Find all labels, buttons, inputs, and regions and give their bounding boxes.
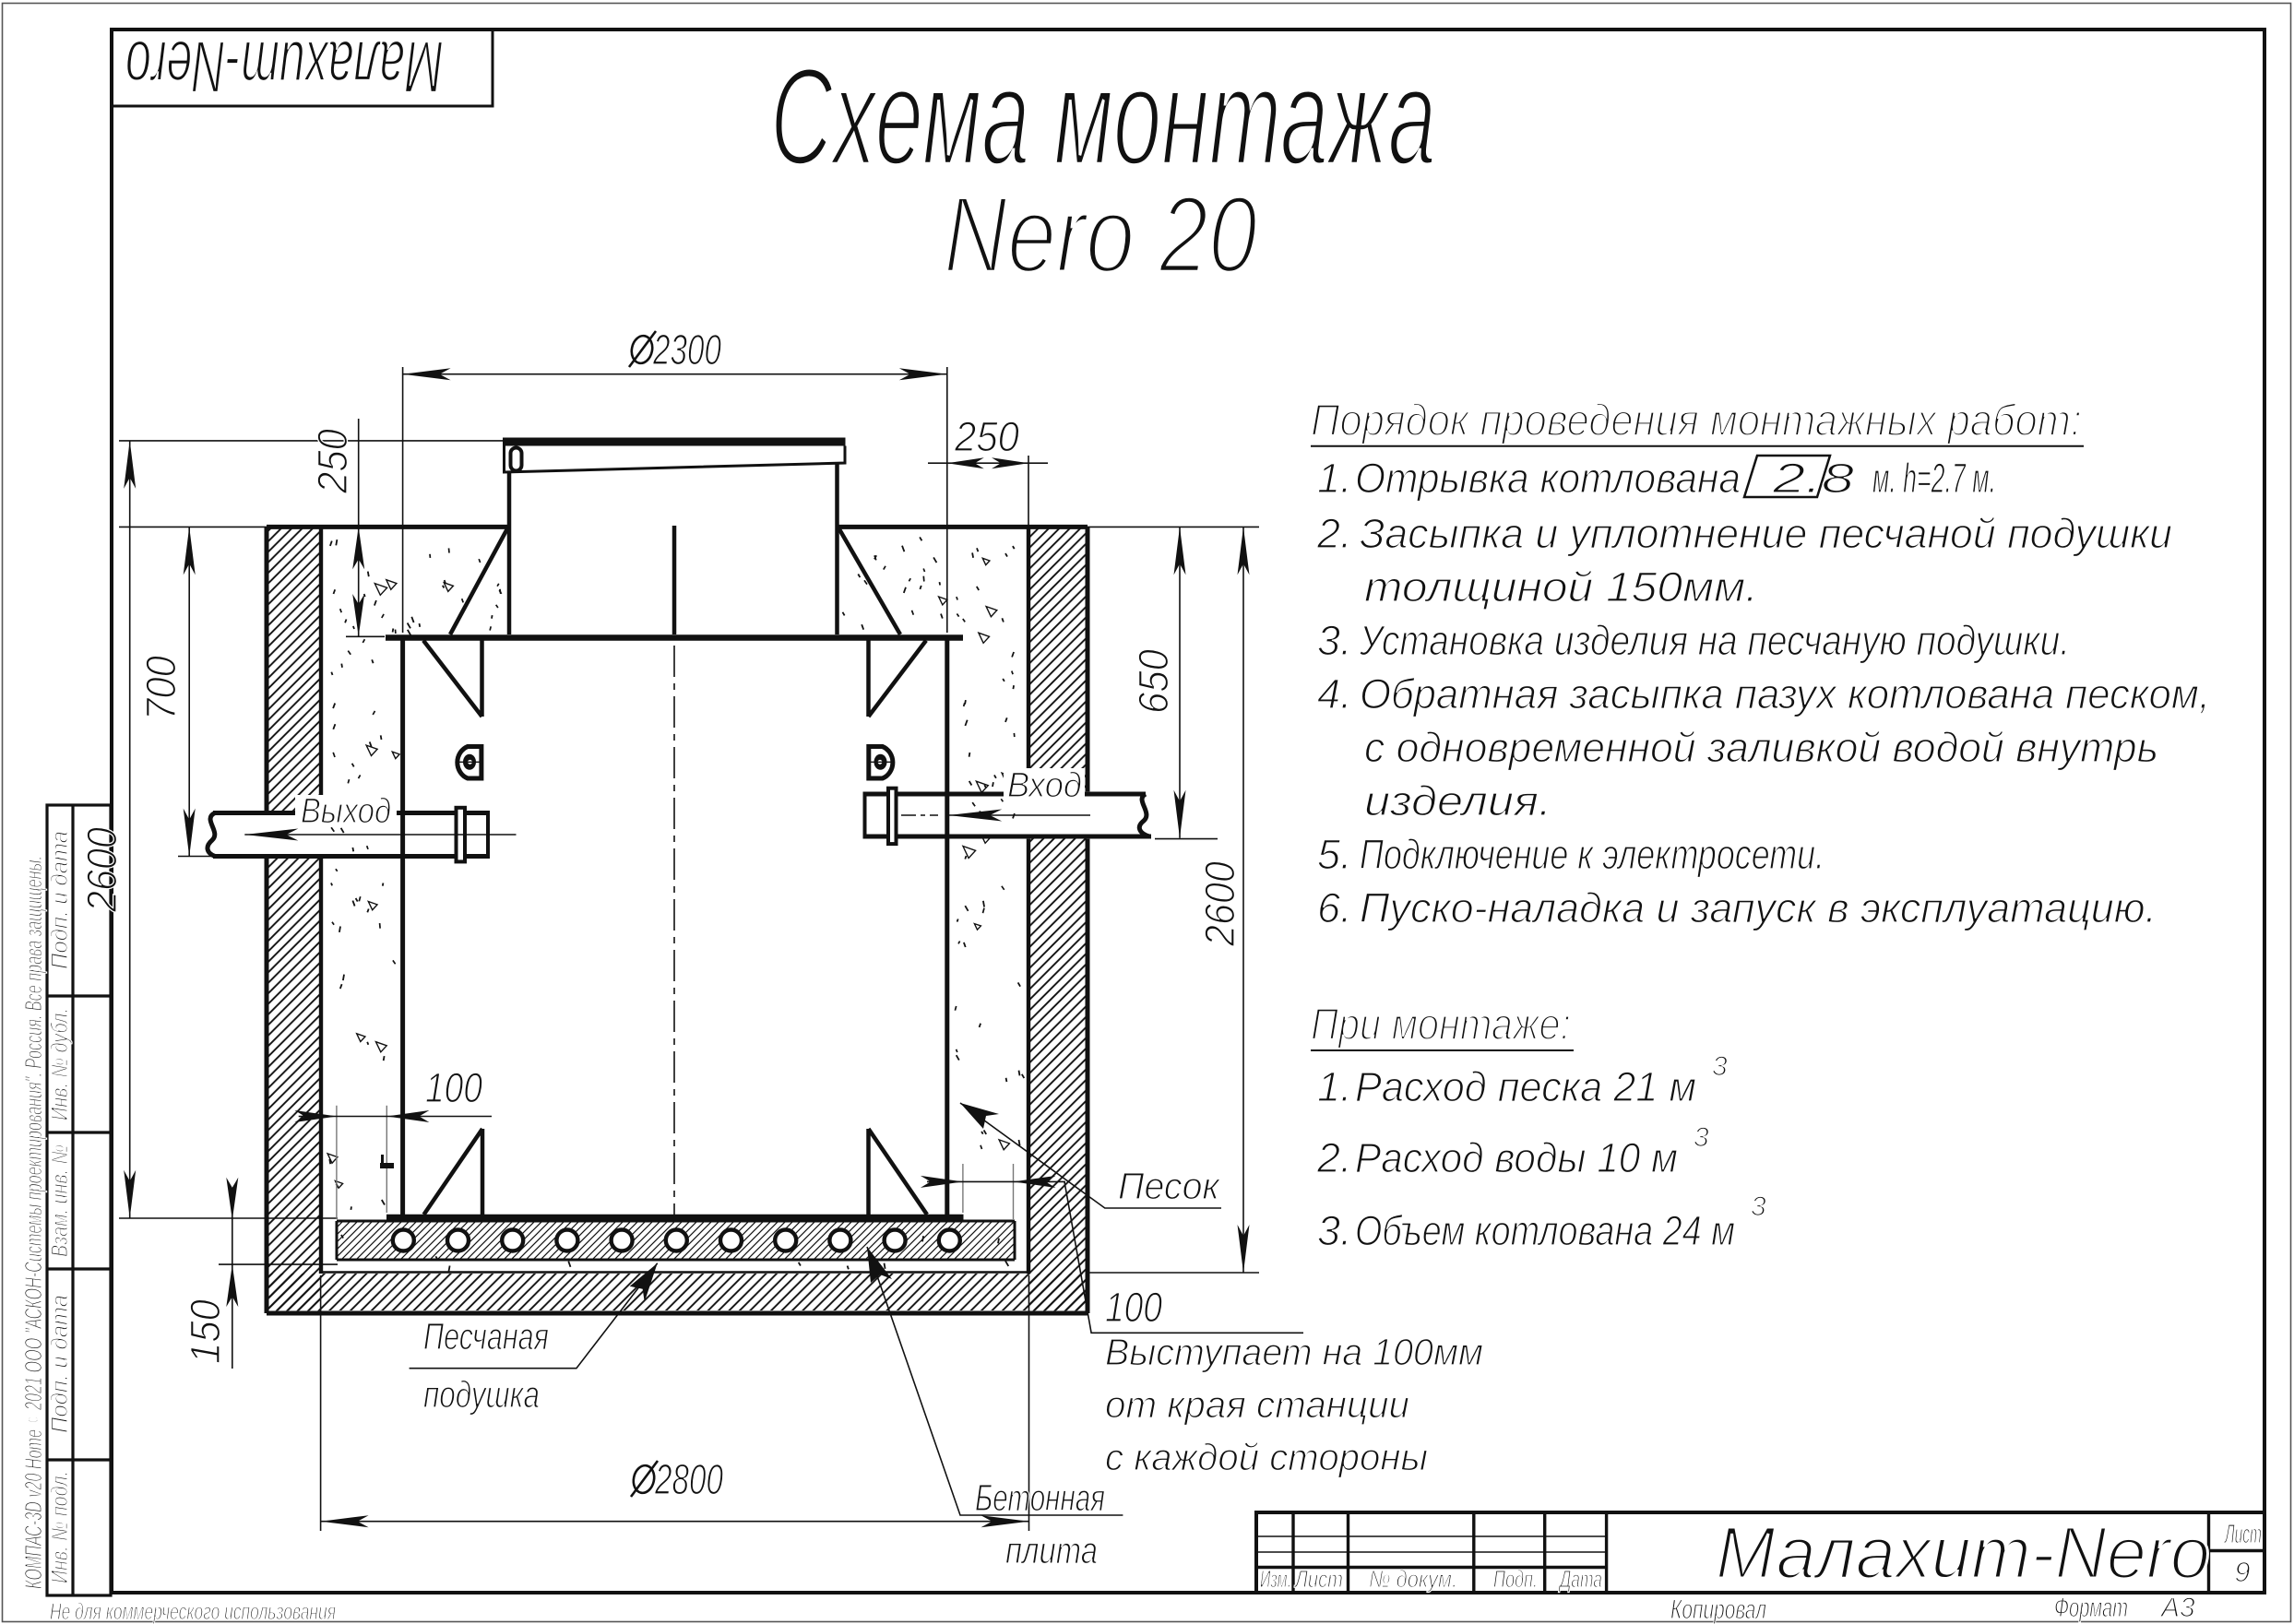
svg-text:Инв. № дубл.: Инв. № дубл. [47,1008,73,1120]
svg-text:Обратная засыпка пазух котлова: Обратная засыпка пазух котлована песком, [1360,670,2210,717]
svg-text:Расход воды 10 м: Расход воды 10 м [1355,1134,1678,1181]
svg-text:250: 250 [309,429,356,494]
svg-text:Выступает на 100мм: Выступает на 100мм [1105,1331,1483,1373]
svg-text:3.: 3. [1317,617,1352,664]
svg-text:Песчаная: Песчаная [423,1315,549,1357]
svg-text:Подключение к электросети.: Подключение к электросети. [1360,831,1825,878]
svg-text:2.: 2. [1316,510,1352,557]
svg-text:3: 3 [1694,1122,1709,1153]
svg-text:Песок: Песок [1118,1165,1221,1207]
svg-text:Изм.: Изм. [1260,1565,1291,1593]
svg-text:изделия.: изделия. [1364,777,1551,824]
svg-text:5.: 5. [1317,831,1352,878]
svg-text:650: 650 [1130,649,1177,714]
svg-text:Взам. инв. №: Взам. инв. № [47,1144,73,1257]
svg-text:Засыпка и уплотнение песчаной: Засыпка и уплотнение песчаной подушки [1360,510,2172,557]
svg-text:Копировал: Копировал [1670,1594,1766,1624]
svg-text:Вход: Вход [1007,766,1082,805]
svg-text:КОМПАС-3D v20 Home © 2021 ООО: КОМПАС-3D v20 Home © 2021 ООО "АСКОН-Сис… [19,856,47,1589]
svg-text:толщиной 150мм.: толщиной 150мм. [1364,563,1758,610]
svg-text:Подп. и дата: Подп. и дата [47,1295,73,1433]
svg-text:1.: 1. [1317,455,1352,502]
svg-text:Подп.: Подп. [1493,1565,1538,1593]
svg-text:Лист: Лист [1293,1565,1343,1593]
svg-text:6.: 6. [1317,884,1352,931]
svg-text:700: 700 [137,656,184,720]
svg-text:с одновременной заливкой водой: с одновременной заливкой водой внутрь [1364,724,2158,771]
svg-text:с каждой стороны: с каждой стороны [1105,1436,1428,1478]
svg-text:А3: А3 [2159,1593,2195,1623]
svg-text:Подп. и дата: Подп. и дата [47,831,73,969]
svg-text:3: 3 [1712,1051,1728,1082]
svg-text:2600: 2600 [1196,861,1243,947]
svg-text:4.: 4. [1317,670,1352,717]
svg-text:2300: 2300 [652,326,721,373]
svg-text:Объем котлована 24 м: Объем котлована 24 м [1355,1207,1735,1254]
svg-text:Nero 20: Nero 20 [944,174,1257,296]
svg-text:Формат: Формат [2054,1593,2128,1623]
svg-text:Не для коммерческого использов: Не для коммерческого использования [50,1599,336,1624]
svg-text:3.: 3. [1317,1207,1352,1254]
svg-text:250: 250 [954,413,1019,460]
svg-text:3: 3 [1751,1191,1766,1222]
svg-text:Отрывка котлована: Отрывка котлована [1355,455,1741,502]
svg-text:Пуско-наладка и запуск в экспл: Пуско-наладка и запуск в эксплуатацию. [1360,884,2157,931]
svg-text:2.8: 2.8 [1772,455,1854,502]
svg-text:2600: 2600 [78,827,125,913]
svg-text:2800: 2800 [654,1455,723,1503]
svg-text:от края станции: от края станции [1105,1383,1409,1426]
svg-text:2.: 2. [1316,1134,1352,1181]
svg-text:Расход песка 21 м: Расход песка 21 м [1355,1063,1696,1110]
svg-text:150: 150 [182,1299,229,1364]
svg-text:1.: 1. [1317,1063,1352,1110]
svg-text:100: 100 [425,1064,482,1111]
svg-text:При монтаже:: При монтаже: [1311,1001,1571,1049]
svg-text:Малахит-Nero: Малахит-Nero [1716,1511,2210,1594]
svg-text:Установка изделия на песчаную: Установка изделия на песчаную подушки. [1359,617,2070,664]
svg-text:Дата: Дата [1558,1565,1602,1593]
svg-text:Бетонная: Бетонная [975,1476,1105,1519]
svg-text:Инв. № подл.: Инв. № подл. [47,1471,73,1583]
svg-text:№ докум.: № докум. [1369,1565,1457,1593]
svg-text:Малахит-Nero: Малахит-Nero [125,26,444,108]
svg-text:Схема монтажа: Схема монтажа [770,39,1436,194]
svg-text:плита: плита [1005,1529,1098,1571]
svg-text:Лист: Лист [2224,1520,2262,1549]
svg-text:100: 100 [1105,1284,1162,1331]
svg-text:подушка: подушка [423,1373,540,1416]
svg-text:м. h=2.7 м.: м. h=2.7 м. [1872,455,1996,502]
svg-text:Порядок проведения монтажных р: Порядок проведения монтажных работ: [1311,397,2082,445]
svg-text:9: 9 [2234,1556,2250,1588]
svg-text:Выход: Выход [301,792,391,831]
